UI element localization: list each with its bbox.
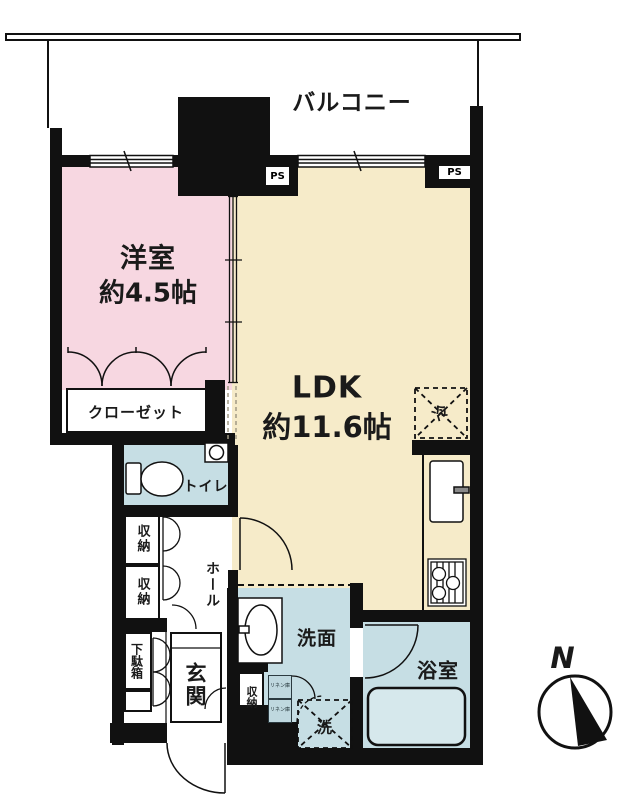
window-western [90,151,173,171]
partition-dashed-edge [228,386,236,440]
washbasin [238,598,282,663]
washroom-door-arcs [292,676,323,722]
closet-bifold-doors [68,347,206,386]
western-room-size: 約4.5帖 [99,273,197,310]
toilet-label: トイレ [184,476,229,496]
toilet-fixture [126,462,183,496]
shoe-cabinet-door-arcs [153,638,170,706]
entrance-storage-label: 収納 [243,686,259,708]
bathroom-door [365,625,418,678]
washing-machine-label: 洗 [317,717,333,738]
entrance-door [167,743,225,793]
window-ldk [298,151,425,171]
hall-label: ホール [202,561,222,609]
compass-north-label: N [550,641,575,675]
compass-icon [539,676,611,748]
bathtub [368,688,465,745]
bathroom-label: 浴室 [417,655,459,684]
ldk-name: LDK [292,371,362,406]
floorplan: PS PS リネン庫 リネン庫 [0,0,618,800]
storage-upper-label: 収納 [133,524,152,554]
closet-label: クローゼット [88,402,184,423]
hall-entrance-door-arc [172,605,196,629]
toilet-corner-sink [205,443,228,462]
entrance-label: 玄関 [180,662,210,708]
hall-ldk-door [240,518,292,570]
partition-western-ldk [225,196,242,383]
shoe-cabinet-label: 下駄箱 [129,643,146,679]
balcony-label: バルコニー [292,83,412,117]
storage-door-arcs [163,517,180,600]
storage-lower-label: 収納 [133,577,152,607]
western-room-name: 洋室 [120,237,176,276]
gas-stove [428,559,466,606]
washroom-label: 洗面 [297,624,337,651]
kitchen-sink [430,461,469,522]
ldk-size: 約11.6帖 [262,404,392,446]
